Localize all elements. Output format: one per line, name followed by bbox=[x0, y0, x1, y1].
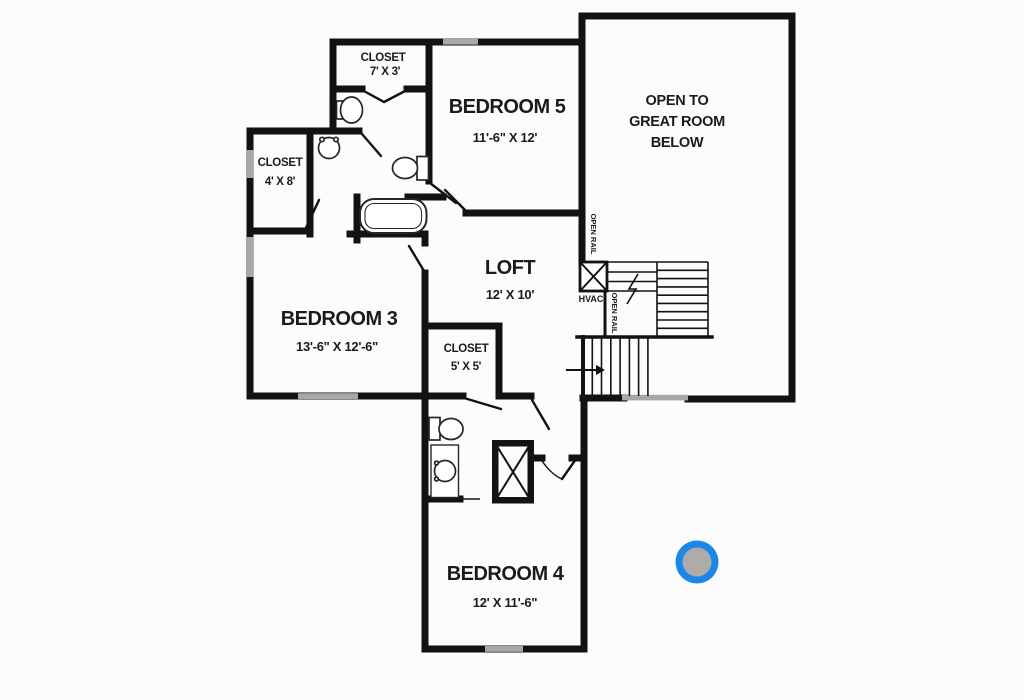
shower-stall bbox=[492, 440, 534, 504]
room-labels: BEDROOM 5 11'-6" X 12' BEDROOM 3 13'-6" … bbox=[258, 52, 726, 610]
cursor-marker bbox=[676, 541, 719, 584]
closet4x8-dims: 4' X 8' bbox=[265, 176, 296, 188]
bedroom5-label: BEDROOM 5 bbox=[449, 96, 566, 118]
closet7x3-door-leaf bbox=[384, 90, 407, 102]
floor-plan-page: BEDROOM 5 11'-6" X 12' BEDROOM 3 13'-6" … bbox=[0, 0, 1024, 700]
pedestal-sink bbox=[337, 97, 363, 123]
bedroom3-label: BEDROOM 3 bbox=[281, 308, 398, 330]
window-bedroom4-bottom bbox=[485, 646, 523, 652]
bath-fixtures bbox=[319, 97, 464, 498]
bath-sink-room-door bbox=[362, 134, 381, 156]
closet7x3-door-leaf bbox=[362, 90, 384, 102]
bedroom5-door bbox=[445, 190, 468, 213]
vanity-sink bbox=[431, 445, 459, 498]
stair-break-symbol bbox=[627, 274, 638, 304]
closet7x3-dims: 7' X 3' bbox=[370, 66, 401, 78]
closet5x5-dims: 5' X 5' bbox=[451, 361, 482, 373]
open-area-line3: BELOW bbox=[651, 135, 704, 151]
window-closet-left bbox=[247, 150, 254, 178]
bedroom3-door bbox=[409, 246, 424, 271]
closet5x5-label: CLOSET bbox=[444, 343, 489, 355]
closet4x8-label: CLOSET bbox=[258, 157, 303, 169]
window-bedroom3-bottom bbox=[298, 393, 358, 399]
bedroom3-dims: 13'-6" X 12'-6" bbox=[296, 339, 378, 354]
closet5x5-door bbox=[464, 398, 501, 409]
bedroom4-door bbox=[562, 459, 576, 479]
open-rail-lower-label: OPEN RAIL bbox=[610, 293, 619, 334]
round-sink bbox=[319, 137, 340, 158]
hvac-box bbox=[580, 262, 607, 291]
cursor-marker-center bbox=[683, 548, 712, 577]
toilet-upper bbox=[393, 157, 429, 181]
window-bedroom3-left bbox=[247, 237, 254, 277]
bedroom4-dims: 12' X 11'-6" bbox=[473, 595, 538, 610]
floor-plan-canvas: BEDROOM 5 11'-6" X 12' BEDROOM 3 13'-6" … bbox=[0, 0, 1024, 700]
bedroom5-dims: 11'-6" X 12' bbox=[473, 130, 538, 145]
bathtub bbox=[360, 199, 427, 233]
toilet-lower bbox=[429, 418, 463, 441]
stair-direction-arrow bbox=[566, 365, 605, 375]
open-area-line1: OPEN TO bbox=[646, 93, 709, 109]
hall-door bbox=[532, 400, 549, 429]
hvac-label: HVAC bbox=[579, 294, 604, 304]
open-area-line2: GREAT ROOM bbox=[629, 114, 725, 130]
window-top bbox=[443, 39, 478, 45]
loft-label: LOFT bbox=[485, 257, 535, 279]
window-stair-bottom bbox=[622, 395, 688, 401]
loft-dims: 12' X 10' bbox=[486, 287, 535, 302]
bedroom4-label: BEDROOM 4 bbox=[447, 563, 565, 585]
open-rail-upper-label: OPEN RAIL bbox=[589, 214, 598, 255]
bedroom4-door-arc bbox=[542, 461, 562, 479]
closet7x3-label: CLOSET bbox=[361, 52, 406, 64]
